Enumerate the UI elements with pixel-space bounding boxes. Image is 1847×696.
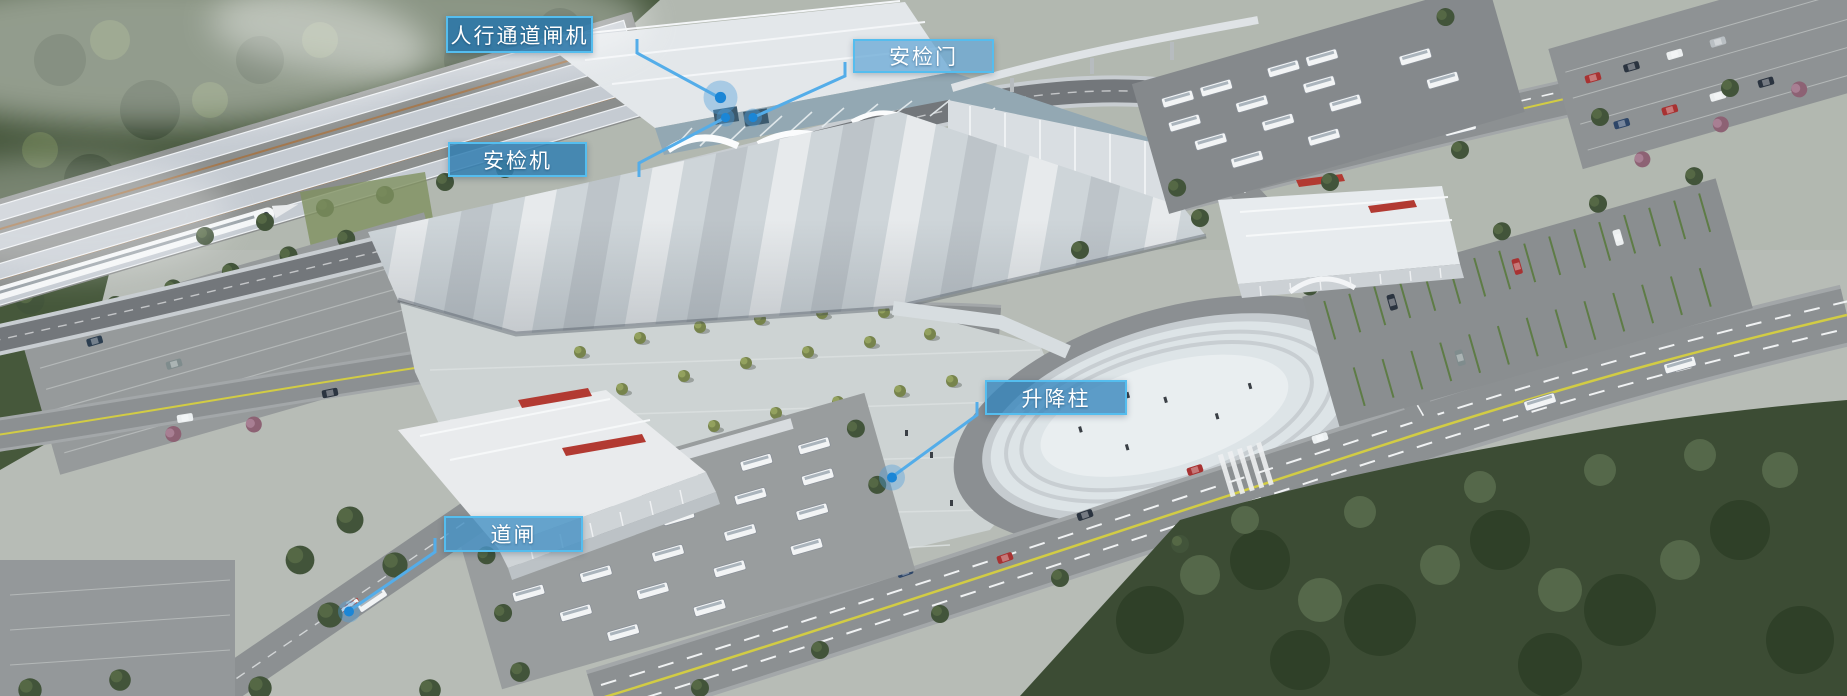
callout-label-pedestrian-gate[interactable]: 人行通道闸机 [446, 16, 593, 53]
callout-label-security-door[interactable]: 安检门 [853, 39, 994, 73]
annotated-station-render: 人行通道闸机 安检门 安检机 升降柱 道闸 [0, 0, 1847, 696]
callout-label-security-machine[interactable]: 安检机 [448, 142, 587, 177]
station-aerial-scene [0, 0, 1847, 696]
callout-label-barrier-gate[interactable]: 道闸 [444, 516, 583, 552]
callout-label-bollard[interactable]: 升降柱 [985, 380, 1127, 415]
